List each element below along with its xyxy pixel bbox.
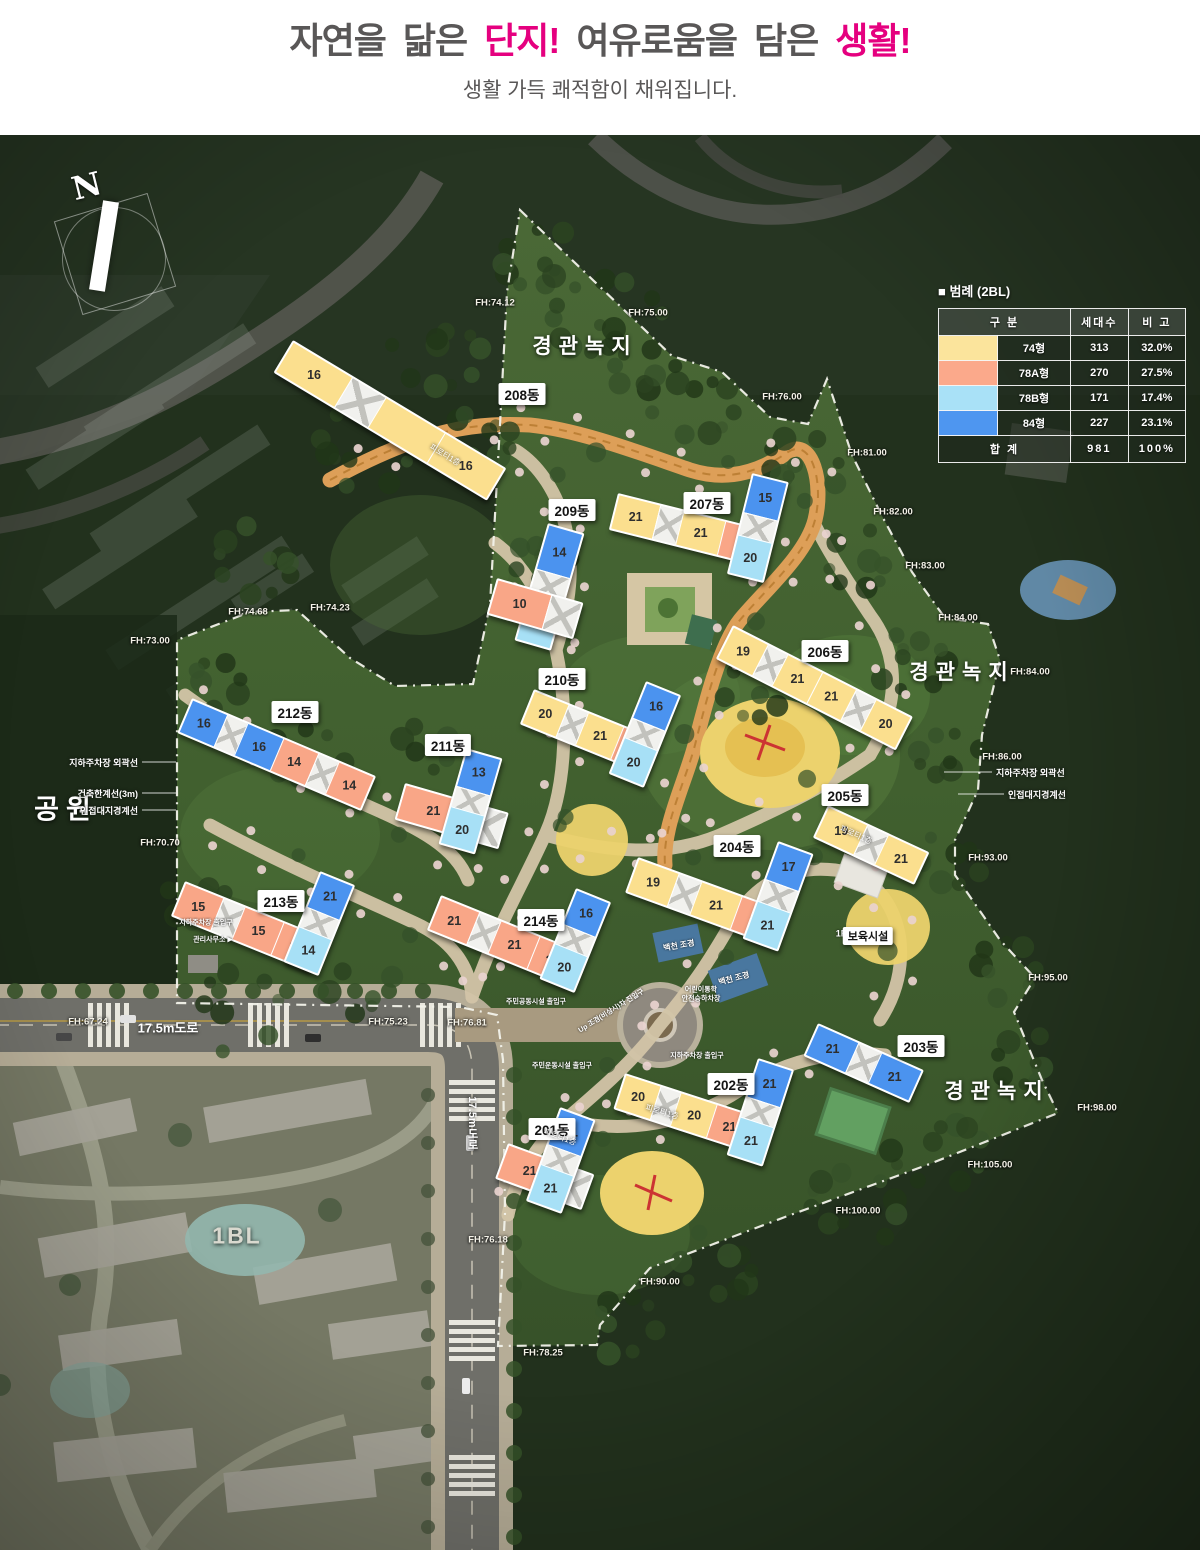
green-zone-label-bottom: 경관녹지 — [944, 1075, 1049, 1105]
building-label-207동: 207동 — [684, 492, 731, 514]
parking-entrance-label-2: 지하주차장 출입구 — [670, 1053, 723, 1062]
north-label: N — [68, 164, 106, 208]
block1-label: 1BL — [212, 1223, 261, 1250]
elevation-label: FH:76.18 — [468, 1235, 508, 1246]
elevation-label: FH:105.00 — [968, 1160, 1013, 1171]
sports-entrance-label: 주민운동시설 출입구 — [532, 1063, 592, 1072]
title-part: 생활! — [835, 20, 910, 61]
legend-cell: 27.5% — [1128, 361, 1185, 386]
elevation-label: FH:93.00 — [968, 853, 1008, 864]
elevation-label: FH:70.70 — [140, 838, 180, 849]
building-label-209동: 209동 — [549, 499, 596, 521]
elevation-label: FH:76.00 — [762, 392, 802, 403]
legend-cell: 32.0% — [1128, 336, 1185, 361]
building-label-202동: 202동 — [708, 1073, 755, 1095]
legend-row: 84형22723.1% — [939, 411, 1186, 436]
title-part: 자연을 닮은 — [290, 20, 485, 61]
elevation-label: FH:82.00 — [873, 507, 913, 518]
legend-title: ■ 범례 (2BL) — [938, 281, 1186, 300]
legend-header-row: 구 분세대수비 고 — [939, 309, 1186, 336]
elevation-label: FH:83.00 — [905, 561, 945, 572]
elevation-label: FH:84.00 — [938, 613, 978, 624]
legend: ■ 범례 (2BL) 구 분세대수비 고74형31332.0%78A형27027… — [938, 281, 1186, 463]
road-label-vertical: 17.5m도로 — [464, 1096, 480, 1149]
daycare-label: 보육시설 — [843, 927, 893, 945]
page-title: 자연을 닮은 단지! 여유로움을 담은 생활! — [0, 0, 1200, 64]
elevation-label: FH:74.68 — [228, 607, 268, 618]
legend-row: 78A형27027.5% — [939, 361, 1186, 386]
green-zone-label-right: 경관녹지 — [909, 656, 1014, 686]
building-label-213동: 213동 — [258, 890, 305, 912]
legend-swatch — [939, 411, 998, 436]
annotation-adjacent-boundary-left: 인접대지경계선 — [80, 804, 138, 817]
management-office-label: 관리사무소 ▶ — [193, 937, 233, 946]
legend-row: 78B형17117.4% — [939, 386, 1186, 411]
elevation-label: FH:74.23 — [310, 603, 350, 614]
kids-dropoff-label: 어린이통학 안전승하차장 — [682, 986, 721, 1004]
community-entrance-label: 주민공동시설 출입구 — [506, 999, 566, 1008]
annotation-building-limit-left: 건축한계선(3m) — [78, 787, 138, 800]
legend-total-row: 합 계981100% — [939, 436, 1186, 463]
legend-column: 비 고 — [1128, 309, 1185, 336]
building-label-214동: 214동 — [518, 909, 565, 931]
legend-total-label: 합 계 — [939, 436, 1071, 463]
building-label-203동: 203동 — [898, 1035, 945, 1057]
page-subtitle: 생활 가득 쾌적함이 채워집니다. — [0, 74, 1200, 104]
elevation-label: FH:73.00 — [130, 636, 170, 647]
elevation-label: FH:86.00 — [982, 752, 1022, 763]
building-label-208동: 208동 — [499, 383, 546, 405]
road-label-horizontal: 17.5m도로 — [138, 1018, 199, 1037]
elevation-label: FH:98.00 — [1077, 1103, 1117, 1114]
title-part: 단지! — [484, 20, 559, 61]
legend-swatch — [939, 386, 998, 411]
parking-entrance-label-1: 지하주차장 출입구 — [179, 920, 232, 929]
legend-cell: 270 — [1071, 361, 1129, 386]
building-label-212동: 212동 — [272, 701, 319, 723]
page: 자연을 닮은 단지! 여유로움을 담은 생활! 생활 가득 쾌적함이 채워집니다… — [0, 0, 1200, 1550]
building-label-205동: 205동 — [822, 784, 869, 806]
legend-total-households: 981 — [1071, 436, 1129, 463]
elevation-label: FH:90.00 — [640, 1277, 680, 1288]
elevation-label: FH:76.81 — [447, 1018, 487, 1029]
elevation-label: FH:84.00 — [1010, 667, 1050, 678]
legend-swatch — [939, 361, 998, 386]
legend-row: 74형31332.0% — [939, 336, 1186, 361]
building-label-210동: 210동 — [539, 668, 586, 690]
title-part: 여유로움을 담은 — [559, 20, 835, 61]
legend-total-ratio: 100% — [1128, 436, 1185, 463]
legend-cell: 78B형 — [998, 386, 1071, 411]
north-compass: N — [38, 171, 198, 321]
legend-cell: 74형 — [998, 336, 1071, 361]
annotation-underground-outline-right: 지하주차장 외곽선 — [996, 766, 1065, 779]
legend-cell: 227 — [1071, 411, 1129, 436]
legend-table: 구 분세대수비 고74형31332.0%78A형27027.5%78B형1711… — [938, 308, 1186, 463]
legend-cell: 313 — [1071, 336, 1129, 361]
legend-cell: 17.4% — [1128, 386, 1185, 411]
building-label-206동: 206동 — [802, 640, 849, 662]
legend-cell: 23.1% — [1128, 411, 1185, 436]
legend-cell: 171 — [1071, 386, 1129, 411]
elevation-label: FH:75.23 — [368, 1017, 408, 1028]
elevation-label: FH:95.00 — [1028, 973, 1068, 984]
elevation-label: FH:100.00 — [836, 1206, 881, 1217]
legend-swatch — [939, 336, 998, 361]
building-label-211동: 211동 — [425, 734, 471, 756]
elevation-label: FH:74.12 — [475, 298, 515, 309]
site-plan-map: 212121201동피로티1층2020212121202동피로티1층212120… — [0, 135, 1200, 1550]
green-zone-label-top: 경관녹지 — [532, 330, 637, 360]
elevation-label: FH:81.00 — [847, 448, 887, 459]
elevation-label: FH:75.00 — [628, 308, 668, 319]
legend-column: 세대수 — [1071, 309, 1129, 336]
elevation-label: FH:67.24 — [68, 1017, 108, 1028]
annotation-adjacent-boundary-right: 인접대지경계선 — [1008, 788, 1066, 801]
annotation-underground-outline-left: 지하주차장 외곽선 — [69, 756, 138, 769]
building-label-204동: 204동 — [714, 835, 761, 857]
legend-column: 구 분 — [939, 309, 1071, 336]
header: 자연을 닮은 단지! 여유로움을 담은 생활! 생활 가득 쾌적함이 채워집니다… — [0, 0, 1200, 135]
legend-cell: 78A형 — [998, 361, 1071, 386]
elevation-label: FH:78.25 — [523, 1348, 563, 1359]
legend-cell: 84형 — [998, 411, 1071, 436]
